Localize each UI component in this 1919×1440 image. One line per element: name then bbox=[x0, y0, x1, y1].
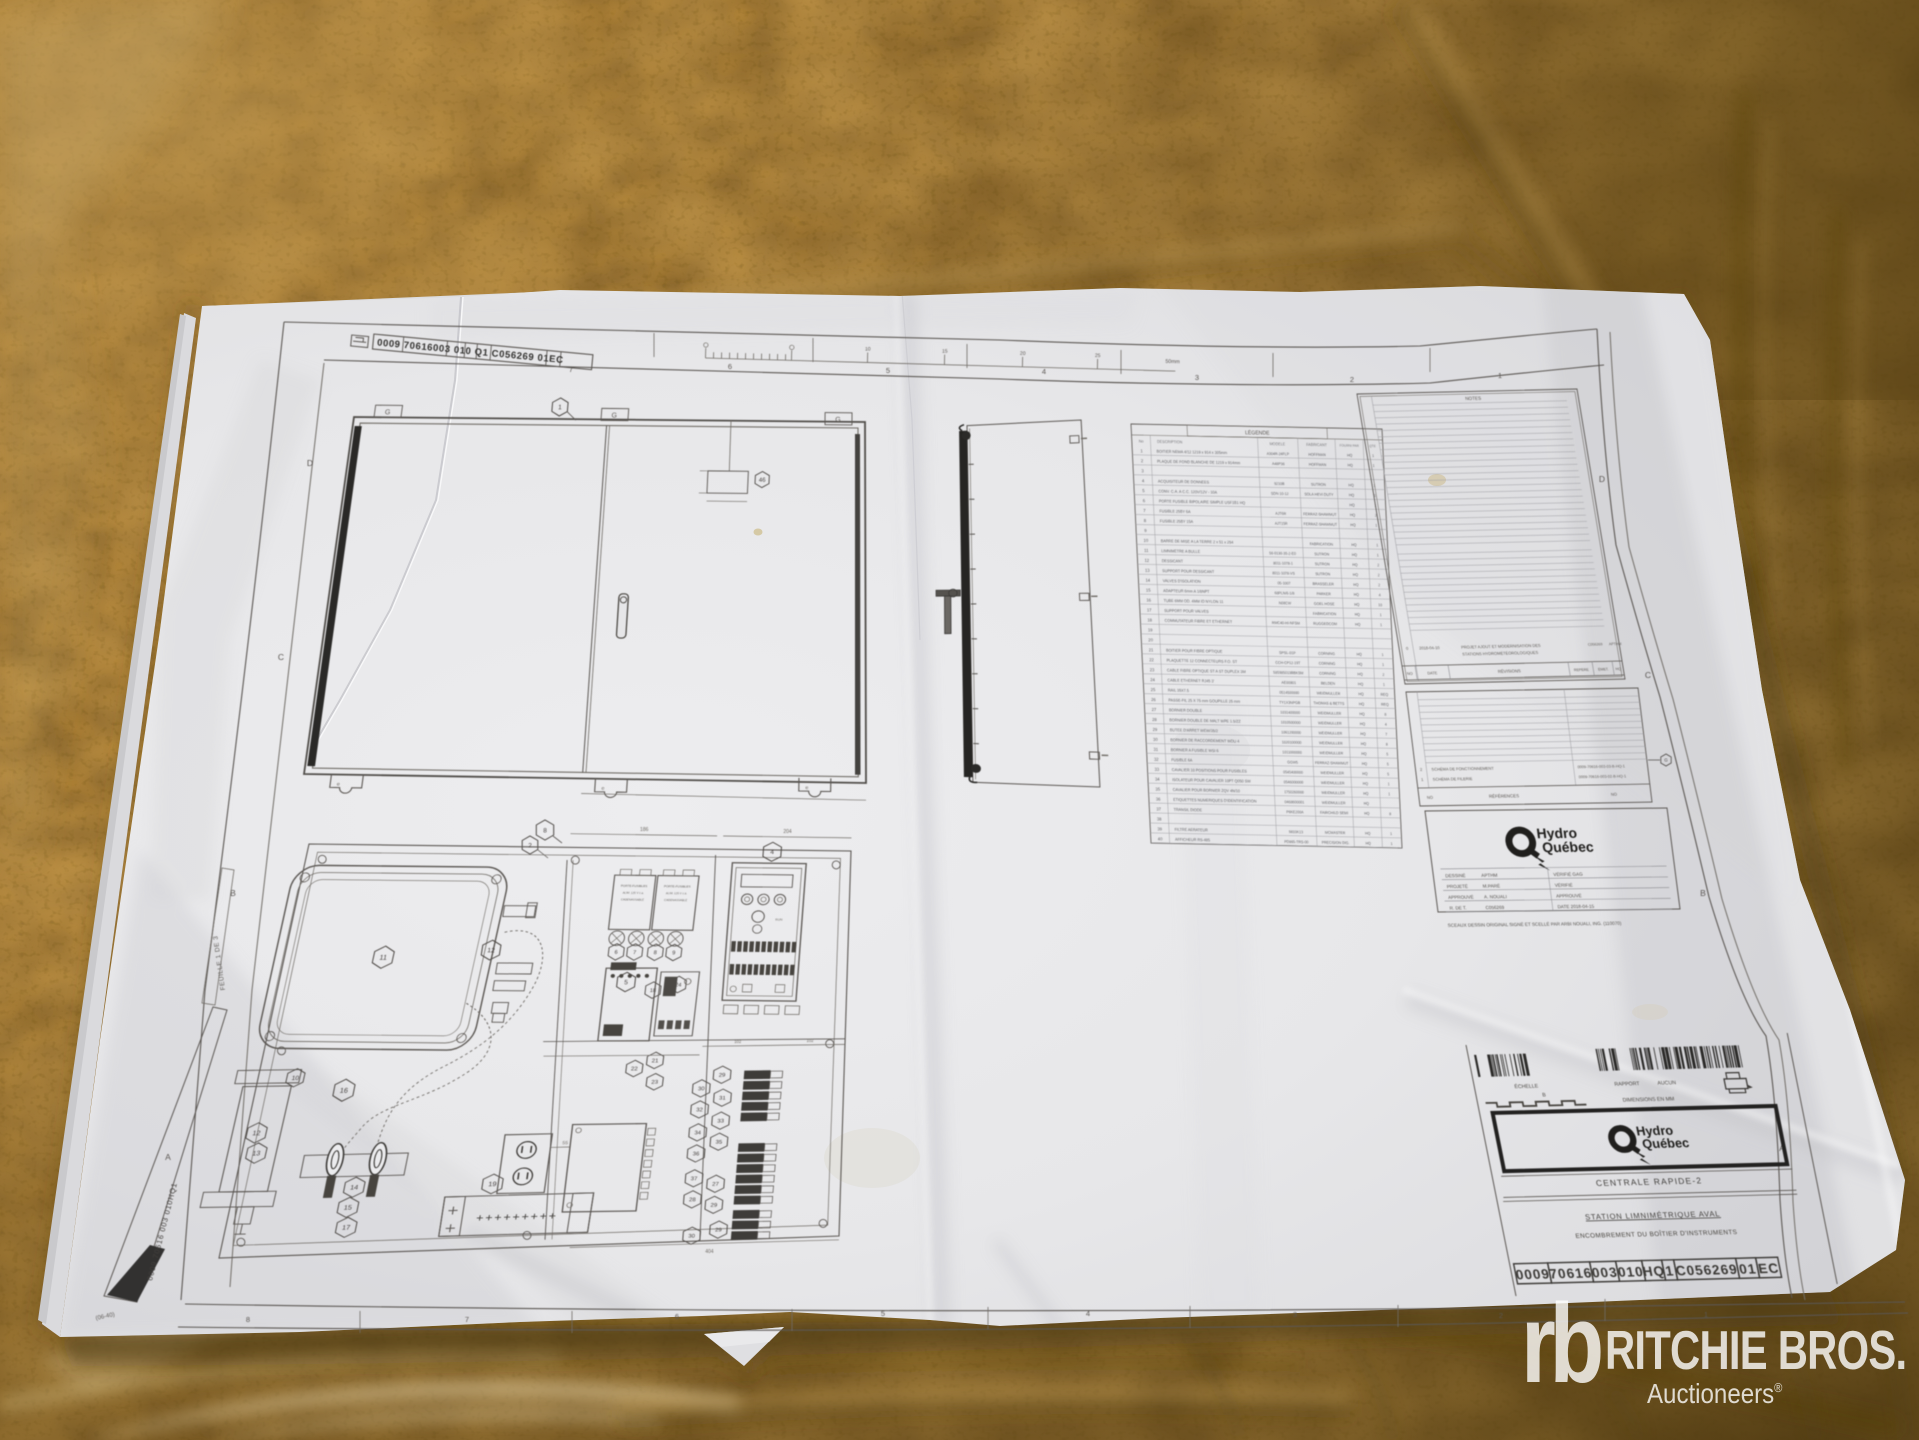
svg-text:21: 21 bbox=[651, 1059, 658, 1065]
svg-text:9833K13: 9833K13 bbox=[1289, 830, 1303, 834]
svg-text:DATE 2018-04-15: DATE 2018-04-15 bbox=[1557, 904, 1595, 909]
svg-text:0009: 0009 bbox=[1514, 1267, 1551, 1283]
svg-text:SUTRON: SUTRON bbox=[1315, 562, 1330, 566]
svg-text:DATE: DATE bbox=[1427, 671, 1438, 675]
svg-text:A. NOUALI: A. NOUALI bbox=[1484, 894, 1507, 899]
svg-text:PASSE-FIL 25 X 75 mm GOUPILLE: PASSE-FIL 25 X 75 mm GOUPILLE 25 mm bbox=[1168, 698, 1240, 704]
svg-text:10: 10 bbox=[1143, 538, 1148, 543]
svg-text:FUSIBLE 25BY 15A: FUSIBLE 25BY 15A bbox=[1160, 519, 1194, 524]
svg-text:2018-04-10: 2018-04-10 bbox=[1419, 645, 1441, 650]
svg-text:2: 2 bbox=[1499, 1311, 1503, 1320]
svg-text:1: 1 bbox=[1390, 832, 1392, 836]
svg-text:1011000000: 1011000000 bbox=[1282, 750, 1302, 755]
svg-text:204: 204 bbox=[783, 829, 792, 835]
svg-text:15: 15 bbox=[942, 349, 948, 355]
svg-text:RAIL 35X7.5: RAIL 35X7.5 bbox=[1168, 688, 1189, 693]
svg-text:102: 102 bbox=[807, 1038, 815, 1043]
svg-text:HQ: HQ bbox=[1354, 603, 1360, 607]
svg-text:HOFFMAN: HOFFMAN bbox=[1308, 453, 1326, 457]
svg-text:BELDEN: BELDEN bbox=[1321, 681, 1336, 685]
svg-text:30: 30 bbox=[698, 1087, 705, 1093]
svg-text:AE00801: AE00801 bbox=[1281, 681, 1296, 685]
svg-text:15: 15 bbox=[343, 1205, 353, 1212]
svg-text:102: 102 bbox=[734, 1039, 742, 1044]
svg-text:55: 55 bbox=[562, 1140, 569, 1146]
svg-text:7: 7 bbox=[465, 1315, 469, 1324]
svg-text:36: 36 bbox=[1156, 796, 1161, 801]
svg-text:FUSIBLE 6A: FUSIBLE 6A bbox=[1171, 758, 1193, 763]
svg-text:FILTRE AERATEUR: FILTRE AERATEUR bbox=[1175, 828, 1209, 833]
svg-text:WEIDMULLER: WEIDMULLER bbox=[1319, 741, 1343, 746]
svg-text:HQ: HQ bbox=[1348, 483, 1354, 487]
svg-text:19: 19 bbox=[1148, 627, 1153, 632]
svg-text:BOITIER POUR FIBRE OPTIQUE: BOITIER POUR FIBRE OPTIQUE bbox=[1166, 649, 1223, 654]
svg-text:AJT6R: AJT6R bbox=[1275, 512, 1286, 516]
svg-text:12: 12 bbox=[252, 1130, 262, 1137]
svg-text:HQ: HQ bbox=[1365, 841, 1371, 845]
svg-text:1: 1 bbox=[1498, 371, 1502, 380]
svg-text:DESCRIPTION: DESCRIPTION bbox=[1157, 440, 1183, 445]
svg-text:C: C bbox=[1645, 670, 1651, 680]
svg-text:APPROUVÉ: APPROUVÉ bbox=[1556, 892, 1582, 898]
svg-text:1: 1 bbox=[558, 404, 563, 411]
svg-text:WEIDMULLER: WEIDMULLER bbox=[1318, 731, 1342, 736]
svg-text:PLAQUETTE 12 CONNECTEURS F.O.: PLAQUETTE 12 CONNECTEURS F.O. ST bbox=[1166, 659, 1238, 665]
svg-text:Québec: Québec bbox=[1641, 1135, 1691, 1151]
svg-text:ALIM. 125 V c.a.: ALIM. 125 V c.a. bbox=[622, 891, 644, 895]
svg-text:PROJETÉ: PROJETÉ bbox=[1446, 883, 1468, 889]
svg-text:1010500000: 1010500000 bbox=[1281, 720, 1301, 725]
svg-text:HQ: HQ bbox=[1351, 543, 1357, 547]
svg-text:FABRICATION: FABRICATION bbox=[1313, 612, 1337, 617]
svg-text:32: 32 bbox=[696, 1108, 703, 1114]
svg-text:BUTEE D'ARRET WEW/35/2: BUTEE D'ARRET WEW/35/2 bbox=[1170, 728, 1218, 733]
svg-text:HQ: HQ bbox=[1363, 792, 1369, 796]
svg-text:HQ: HQ bbox=[1350, 523, 1356, 527]
svg-text:4: 4 bbox=[770, 849, 775, 856]
svg-text:HQ: HQ bbox=[1352, 563, 1358, 567]
svg-text:HQ: HQ bbox=[1352, 553, 1358, 557]
svg-text:MODELE: MODELE bbox=[1269, 442, 1285, 446]
svg-text:THOMAS & BETTS: THOMAS & BETTS bbox=[1313, 701, 1345, 706]
svg-text:HQ: HQ bbox=[1355, 613, 1361, 617]
svg-text:WEIDMULLER: WEIDMULLER bbox=[1317, 691, 1341, 696]
svg-text:4: 4 bbox=[1042, 367, 1046, 376]
svg-text:7: 7 bbox=[1143, 508, 1146, 513]
svg-text:36: 36 bbox=[692, 1152, 699, 1158]
svg-text:ÉMET.: ÉMET. bbox=[1598, 666, 1610, 671]
svg-text:FERRAZ-SHAWMUT: FERRAZ-SHAWMUT bbox=[1304, 522, 1338, 527]
svg-text:28: 28 bbox=[1152, 717, 1157, 722]
svg-text:(06-40): (06-40) bbox=[95, 1312, 115, 1322]
svg-text:2: 2 bbox=[1420, 767, 1424, 772]
svg-text:LÉGENDE: LÉGENDE bbox=[1245, 429, 1270, 437]
svg-text:WEIDMULLER: WEIDMULLER bbox=[1319, 751, 1343, 756]
svg-text:29: 29 bbox=[718, 1073, 725, 1079]
svg-text:0545400000: 0545400000 bbox=[1283, 770, 1303, 775]
svg-text:28: 28 bbox=[689, 1198, 696, 1204]
svg-text:WEIDMULLER: WEIDMULLER bbox=[1320, 771, 1344, 776]
svg-text:35: 35 bbox=[1155, 786, 1160, 791]
svg-text:14: 14 bbox=[349, 1185, 359, 1192]
svg-text:A48P36: A48P36 bbox=[1272, 462, 1285, 466]
svg-text:CADENASSABLE: CADENASSABLE bbox=[621, 898, 645, 902]
svg-text:0514500000: 0514500000 bbox=[1279, 691, 1299, 696]
svg-text:18: 18 bbox=[1147, 617, 1152, 622]
svg-text:SUPPORT POUR DESSICANT: SUPPORT POUR DESSICANT bbox=[1162, 569, 1215, 574]
svg-text:22: 22 bbox=[1149, 657, 1154, 662]
svg-text:FABRICANT: FABRICANT bbox=[1306, 443, 1328, 448]
svg-text:RUGGEDCOM: RUGGEDCOM bbox=[1313, 622, 1337, 627]
svg-text:M.PARÉ: M.PARÉ bbox=[1482, 882, 1500, 888]
svg-text:A: A bbox=[165, 1152, 171, 1162]
svg-text:0009-70616-003-02-B-HQ-1: 0009-70616-003-02-B-HQ-1 bbox=[1579, 774, 1627, 779]
svg-text:12: 12 bbox=[1144, 558, 1149, 563]
svg-text:SUTRON: SUTRON bbox=[1311, 482, 1326, 486]
svg-text:BORNIER DOUBLE: BORNIER DOUBLE bbox=[1169, 708, 1203, 713]
svg-text:BARRE DE MISE A LA TERRE 2 x 5: BARRE DE MISE A LA TERRE 2 x 51 x 254 bbox=[1161, 539, 1235, 545]
svg-text:HQ: HQ bbox=[1362, 772, 1368, 776]
svg-text:32: 32 bbox=[1154, 757, 1159, 762]
svg-text:186: 186 bbox=[640, 827, 649, 833]
svg-text:CAVALIER POUR BORNIER ZQV 4N/1: CAVALIER POUR BORNIER ZQV 4N/10 bbox=[1173, 788, 1240, 793]
svg-text:WEIDMULLER: WEIDMULLER bbox=[1321, 791, 1345, 796]
svg-text:A304R-24FLP: A304R-24FLP bbox=[1267, 452, 1290, 457]
svg-text:01: 01 bbox=[1738, 1261, 1758, 1276]
svg-text:HQ: HQ bbox=[1361, 752, 1367, 756]
svg-text:8011-1078-1: 8011-1078-1 bbox=[1273, 561, 1293, 566]
svg-text:C056269: C056269 bbox=[1588, 642, 1603, 646]
svg-text:ETIQUETTES NUMERIQUES D'IDENTI: ETIQUETTES NUMERIQUES D'IDENTIFICATION bbox=[1173, 798, 1257, 804]
svg-text:RUN: RUN bbox=[775, 918, 783, 922]
svg-text:FOURNI PAR: FOURNI PAR bbox=[1340, 443, 1360, 448]
svg-text:27: 27 bbox=[712, 1182, 719, 1188]
svg-text:8: 8 bbox=[1389, 812, 1391, 816]
svg-text:HQ: HQ bbox=[1347, 463, 1353, 467]
svg-text:1: 1 bbox=[1372, 464, 1374, 468]
svg-text:C: C bbox=[278, 652, 284, 662]
svg-text:COMMUTATEUR FIBRE ET ETHERNET: COMMUTATEUR FIBRE ET ETHERNET bbox=[1165, 619, 1233, 624]
svg-text:6: 6 bbox=[675, 1312, 679, 1321]
svg-text:CORNING: CORNING bbox=[1319, 662, 1336, 666]
svg-text:7: 7 bbox=[569, 365, 573, 374]
svg-text:DESSICANT: DESSICANT bbox=[1162, 559, 1184, 564]
svg-text:35: 35 bbox=[715, 1140, 722, 1146]
svg-text:TRANSIL DIODE: TRANSIL DIODE bbox=[1174, 808, 1203, 813]
svg-text:G: G bbox=[611, 413, 617, 420]
svg-text:TUBE 6MM OD. 4MM ID NYLON 11: TUBE 6MM OD. 4MM ID NYLON 11 bbox=[1164, 599, 1224, 604]
svg-text:12: 12 bbox=[487, 947, 496, 954]
svg-text:WEIDMULLER: WEIDMULLER bbox=[1318, 721, 1342, 726]
svg-text:APTHM: APTHM bbox=[1609, 642, 1622, 646]
svg-text:46: 46 bbox=[759, 478, 767, 484]
svg-text:CORNING: CORNING bbox=[1318, 652, 1335, 656]
svg-text:56-0130-35-2-E0: 56-0130-35-2-E0 bbox=[1269, 551, 1296, 556]
svg-text:CCH-CP12-19T: CCH-CP12-19T bbox=[1275, 661, 1301, 666]
svg-text:003: 003 bbox=[1591, 1265, 1619, 1281]
svg-text:HQ: HQ bbox=[1360, 732, 1366, 736]
svg-text:11: 11 bbox=[379, 953, 388, 962]
svg-text:4: 4 bbox=[1379, 593, 1381, 597]
svg-text:TY1X3NPGB: TY1X3NPGB bbox=[1279, 701, 1301, 706]
svg-text:22: 22 bbox=[631, 1067, 638, 1073]
svg-text:1: 1 bbox=[1383, 683, 1385, 687]
svg-text:6: 6 bbox=[1143, 498, 1146, 503]
svg-text:1: 1 bbox=[1388, 782, 1390, 786]
svg-text:1: 1 bbox=[1380, 623, 1382, 627]
svg-text:15: 15 bbox=[1146, 588, 1151, 593]
svg-text:50mm: 50mm bbox=[1165, 359, 1180, 365]
svg-text:HQ: HQ bbox=[1615, 667, 1621, 671]
svg-text:FABRICATION: FABRICATION bbox=[1310, 542, 1334, 547]
svg-text:HQ: HQ bbox=[1353, 573, 1359, 577]
svg-text:2: 2 bbox=[1378, 583, 1380, 587]
svg-text:5: 5 bbox=[1142, 488, 1145, 493]
svg-text:NO: NO bbox=[1427, 795, 1434, 800]
svg-text:HQ: HQ bbox=[1365, 831, 1371, 835]
svg-text:FUSIBLE 25BY 6A: FUSIBLE 25BY 6A bbox=[1159, 509, 1191, 514]
svg-text:1: 1 bbox=[1377, 553, 1379, 557]
svg-text:3: 3 bbox=[1293, 1310, 1297, 1319]
svg-text:9: 9 bbox=[672, 950, 676, 956]
svg-text:RÉFÉRENCES: RÉFÉRENCES bbox=[1489, 792, 1520, 798]
svg-text:68PLN/6-1/8: 68PLN/6-1/8 bbox=[1274, 591, 1294, 596]
svg-text:1: 1 bbox=[1375, 524, 1377, 528]
svg-text:0468600001: 0468600001 bbox=[1285, 800, 1305, 805]
svg-text:CENTRALE RAPIDE-2: CENTRALE RAPIDE-2 bbox=[1595, 1175, 1703, 1188]
svg-text:5: 5 bbox=[1386, 752, 1388, 756]
svg-text:B: B bbox=[1700, 888, 1706, 898]
svg-text:5: 5 bbox=[881, 1309, 885, 1318]
svg-text:RMC40-HI-NFSM: RMC40-HI-NFSM bbox=[1272, 621, 1300, 626]
svg-text:DESSINÉ: DESSINÉ bbox=[1445, 872, 1466, 878]
svg-text:404: 404 bbox=[705, 1249, 714, 1255]
svg-text:17: 17 bbox=[341, 1225, 351, 1232]
svg-text:FEUILLE 1 DE 3: FEUILLE 1 DE 3 bbox=[212, 935, 227, 991]
svg-text:PROJET AJOUT ET MODERNISATION: PROJET AJOUT ET MODERNISATION DES bbox=[1461, 643, 1542, 650]
svg-text:40: 40 bbox=[1158, 836, 1163, 841]
svg-text:ALIM. 125 V c.a.: ALIM. 125 V c.a. bbox=[666, 891, 688, 895]
svg-text:1031400000: 1031400000 bbox=[1280, 710, 1300, 715]
svg-text:BRASSELER: BRASSELER bbox=[1313, 582, 1335, 587]
svg-text:8: 8 bbox=[1386, 742, 1388, 746]
svg-text:HQ: HQ bbox=[1347, 453, 1353, 457]
svg-text:N08CW: N08CW bbox=[1279, 601, 1292, 605]
svg-text:70616: 70616 bbox=[1548, 1266, 1593, 1282]
svg-text:CABLE ETHERNET RJ45 3': CABLE ETHERNET RJ45 3' bbox=[1167, 678, 1214, 683]
svg-text:5: 5 bbox=[1387, 762, 1389, 766]
svg-text:DIMENSIONS EN MM: DIMENSIONS EN MM bbox=[1622, 1096, 1675, 1103]
svg-text:NO: NO bbox=[1611, 792, 1618, 797]
svg-text:23: 23 bbox=[651, 1080, 658, 1086]
svg-text:NOTES: NOTES bbox=[1465, 396, 1482, 401]
svg-text:ENCOMBREMENT DU BOÎTIER D'INST: ENCOMBREMENT DU BOÎTIER D'INSTRUMENTS bbox=[1574, 1227, 1738, 1240]
svg-text:17: 17 bbox=[1147, 607, 1152, 612]
svg-text:30: 30 bbox=[688, 1234, 695, 1240]
svg-text:C056269: C056269 bbox=[1674, 1262, 1739, 1278]
svg-text:1: 1 bbox=[1388, 792, 1390, 796]
svg-text:e: e bbox=[336, 782, 340, 788]
svg-text:WEIDMULLER: WEIDMULLER bbox=[1322, 801, 1346, 806]
svg-text:16: 16 bbox=[1146, 597, 1151, 602]
svg-text:LIMNIMETRE A BULLE: LIMNIMETRE A BULLE bbox=[1161, 549, 1200, 554]
svg-text:HQ: HQ bbox=[1349, 503, 1355, 507]
svg-text:1750260000: 1750260000 bbox=[1284, 790, 1304, 795]
svg-text:21: 21 bbox=[1149, 647, 1154, 652]
svg-text:2: 2 bbox=[1141, 458, 1144, 463]
svg-text:EC: EC bbox=[1757, 1261, 1781, 1276]
svg-text:1: 1 bbox=[1372, 454, 1374, 458]
svg-text:REPÈRE: REPÈRE bbox=[1573, 667, 1589, 672]
svg-text:e: e bbox=[601, 786, 605, 792]
svg-text:G: G bbox=[835, 417, 840, 424]
svg-text:VÉRIFIÉ: VÉRIFIÉ bbox=[1554, 882, 1573, 888]
svg-text:26: 26 bbox=[1151, 697, 1156, 702]
svg-text:SUTRON: SUTRON bbox=[1315, 572, 1330, 576]
svg-text:1: 1 bbox=[1140, 448, 1143, 453]
svg-text:HQ: HQ bbox=[1363, 782, 1369, 786]
svg-text:QTE: QTE bbox=[1369, 444, 1376, 448]
svg-text:HQ: HQ bbox=[1364, 802, 1370, 806]
svg-text:APTHM: APTHM bbox=[1481, 873, 1498, 878]
svg-text:HQ: HQ bbox=[1364, 812, 1370, 816]
svg-text:SOLA HEVI DUTY: SOLA HEVI DUTY bbox=[1304, 492, 1334, 497]
svg-text:8: 8 bbox=[653, 950, 657, 956]
svg-text:16: 16 bbox=[339, 1086, 349, 1095]
svg-text:SDN 10-12: SDN 10-12 bbox=[1271, 492, 1289, 496]
svg-text:HQ: HQ bbox=[1359, 702, 1365, 706]
svg-text:1020100000: 1020100000 bbox=[1282, 740, 1302, 745]
svg-text:25: 25 bbox=[1095, 353, 1101, 359]
svg-text:20: 20 bbox=[1148, 637, 1153, 642]
svg-text:29: 29 bbox=[715, 1228, 722, 1234]
svg-text:7: 7 bbox=[633, 950, 637, 956]
svg-text:0: 0 bbox=[1406, 646, 1410, 651]
svg-text:HQ: HQ bbox=[1354, 593, 1360, 597]
svg-text:CONV. C.A. A C.C. 120V/12V - 1: CONV. C.A. A C.C. 120V/12V - 10A bbox=[1158, 489, 1217, 494]
svg-text:STATIONS HYDROMÉTÉOROLOGIQUES: STATIONS HYDROMÉTÉOROLOGIQUES bbox=[1462, 650, 1539, 657]
svg-text:SCHÉMA DE FONCTIONNEMENT: SCHÉMA DE FONCTIONNEMENT bbox=[1431, 766, 1494, 772]
svg-text:10: 10 bbox=[1378, 603, 1382, 607]
svg-text:NO: NO bbox=[1407, 672, 1413, 676]
svg-text:HQ: HQ bbox=[1355, 623, 1361, 627]
svg-text:HQ: HQ bbox=[1350, 513, 1356, 517]
svg-text:8: 8 bbox=[543, 827, 547, 834]
svg-text:2: 2 bbox=[1378, 573, 1380, 577]
svg-text:39: 39 bbox=[1157, 826, 1162, 831]
svg-text:34: 34 bbox=[694, 1131, 701, 1137]
svg-text:AFFICHEUR RS-485: AFFICHEUR RS-485 bbox=[1175, 838, 1210, 843]
svg-text:HOFFMAN: HOFFMAN bbox=[1309, 463, 1327, 467]
svg-text:0009-70616-003-03-B-HQ-1: 0009-70616-003-03-B-HQ-1 bbox=[1577, 764, 1625, 769]
svg-text:e: e bbox=[805, 785, 808, 791]
svg-text:ADAPTEUR 6mm A 1/8NPT: ADAPTEUR 6mm A 1/8NPT bbox=[1163, 589, 1210, 594]
svg-text:4: 4 bbox=[1086, 1309, 1090, 1318]
svg-text:7: 7 bbox=[1385, 732, 1387, 736]
svg-text:SCEAUX DESSIN ORIGINAL SIGNÉ: SCEAUX DESSIN ORIGINAL SIGNÉ ET SCELLÉ P… bbox=[1447, 920, 1622, 928]
svg-text:5: 5 bbox=[886, 366, 890, 375]
svg-text:VALVES D'ISOLATION: VALVES D'ISOLATION bbox=[1163, 579, 1201, 584]
svg-text:0546000000: 0546000000 bbox=[1284, 780, 1304, 785]
svg-text:SUTRON: SUTRON bbox=[1314, 552, 1329, 556]
svg-text:8: 8 bbox=[1384, 713, 1386, 717]
svg-text:HQ: HQ bbox=[1358, 682, 1364, 686]
svg-text:4: 4 bbox=[1385, 723, 1387, 727]
svg-text:B: B bbox=[1542, 1093, 1547, 1099]
svg-text:8011-1078-VS: 8011-1078-VS bbox=[1272, 571, 1295, 576]
svg-text:HQ: HQ bbox=[1359, 712, 1365, 716]
svg-text:PLAQUE DE FOND BLANCHE DE 1219: PLAQUE DE FOND BLANCHE DE 1219 x 914mm bbox=[1157, 460, 1241, 466]
svg-text:33: 33 bbox=[717, 1119, 724, 1125]
svg-text:CADENASSABLE: CADENASSABLE bbox=[664, 898, 688, 902]
svg-text:BOITIER NEMA 4/12 1219 x 914 x: BOITIER NEMA 4/12 1219 x 914 x 305mm bbox=[1156, 450, 1227, 456]
svg-text:GOEL HOSE: GOEL HOSE bbox=[1314, 602, 1335, 607]
svg-text:CABLE FIBRE OPTIQUE ST A ST DU: CABLE FIBRE OPTIQUE ST A ST DUPLEX 3M bbox=[1167, 668, 1246, 674]
svg-text:BORNIER A FUSIBLE WSI 6: BORNIER A FUSIBLE WSI 6 bbox=[1171, 748, 1219, 753]
svg-text:9: 9 bbox=[1144, 528, 1147, 533]
svg-text:9210B: 9210B bbox=[1274, 482, 1285, 486]
svg-text:2: 2 bbox=[1377, 563, 1379, 567]
svg-text:SPSL-01P: SPSL-01P bbox=[1279, 651, 1296, 655]
svg-text:29: 29 bbox=[1152, 727, 1157, 732]
svg-text:D: D bbox=[307, 458, 313, 468]
svg-text:6: 6 bbox=[614, 950, 618, 956]
svg-text:REQ: REQ bbox=[1380, 693, 1388, 697]
svg-text:FERRAZ-SHAWMUT: FERRAZ-SHAWMUT bbox=[1315, 761, 1349, 766]
svg-text:Québec: Québec bbox=[1541, 839, 1595, 856]
svg-text:APPROUVÉ: APPROUVÉ bbox=[1448, 894, 1474, 900]
svg-text:AUCUN: AUCUN bbox=[1657, 1080, 1677, 1086]
svg-text:P6KE200A: P6KE200A bbox=[1286, 810, 1304, 814]
svg-text:ÉCHELLE: ÉCHELLE bbox=[1514, 1083, 1540, 1091]
svg-text:No: No bbox=[1139, 439, 1144, 443]
svg-text:1: 1 bbox=[1664, 1264, 1675, 1279]
svg-text:FAIRCHILD SEMI: FAIRCHILD SEMI bbox=[1320, 811, 1348, 816]
svg-text:5: 5 bbox=[1387, 772, 1389, 776]
svg-text:HQ: HQ bbox=[1360, 722, 1366, 726]
svg-text:CAVALIER 10 POSITIONS POUR FUS: CAVALIER 10 POSITIONS POUR FUSIBLES bbox=[1172, 768, 1248, 774]
svg-text:HQ: HQ bbox=[1362, 762, 1368, 766]
svg-text:ACQUISITEUR DE DONNEES: ACQUISITEUR DE DONNEES bbox=[1158, 479, 1210, 484]
svg-text:PRECISION DIG.: PRECISION DIG. bbox=[1322, 841, 1350, 846]
svg-text:PORTE FUSIBLE BIPOLAIRE SIMPLE: PORTE FUSIBLE BIPOLAIRE SIMPLE USF1B1 HQ bbox=[1159, 499, 1246, 505]
svg-text:RÉVISIONS: RÉVISIONS bbox=[1497, 668, 1521, 673]
svg-text:PORTE-FUSIBLES: PORTE-FUSIBLES bbox=[664, 884, 691, 888]
svg-text:13: 13 bbox=[251, 1151, 261, 1158]
svg-text:5: 5 bbox=[624, 979, 629, 986]
svg-text:1: 1 bbox=[1390, 842, 1392, 846]
svg-text:HQ: HQ bbox=[1357, 672, 1363, 676]
svg-text:31: 31 bbox=[1153, 747, 1158, 752]
svg-text:PORTE-FUSIBLES: PORTE-FUSIBLES bbox=[621, 884, 648, 888]
svg-text:8: 8 bbox=[1144, 518, 1147, 523]
svg-text:HQ: HQ bbox=[1361, 742, 1367, 746]
svg-text:3: 3 bbox=[1195, 373, 1199, 382]
svg-text:23: 23 bbox=[1150, 667, 1155, 672]
svg-text:WEIDMULLER: WEIDMULLER bbox=[1321, 781, 1345, 786]
svg-text:CORNING: CORNING bbox=[1319, 672, 1336, 676]
svg-text:FERRAZ-SHAWMUT: FERRAZ-SHAWMUT bbox=[1303, 512, 1337, 517]
svg-text:34: 34 bbox=[1155, 777, 1160, 782]
svg-text:D: D bbox=[1599, 474, 1605, 484]
svg-text:HQ: HQ bbox=[1357, 662, 1363, 666]
svg-text:29: 29 bbox=[710, 1203, 717, 1209]
svg-text:G: G bbox=[384, 409, 390, 416]
svg-text:1: 1 bbox=[1421, 777, 1425, 782]
svg-text:VÉRIFIÉ GAG: VÉRIFIÉ GAG bbox=[1553, 871, 1584, 877]
svg-text:1: 1 bbox=[1382, 663, 1384, 667]
svg-text:MCMASTER: MCMASTER bbox=[1325, 831, 1346, 836]
